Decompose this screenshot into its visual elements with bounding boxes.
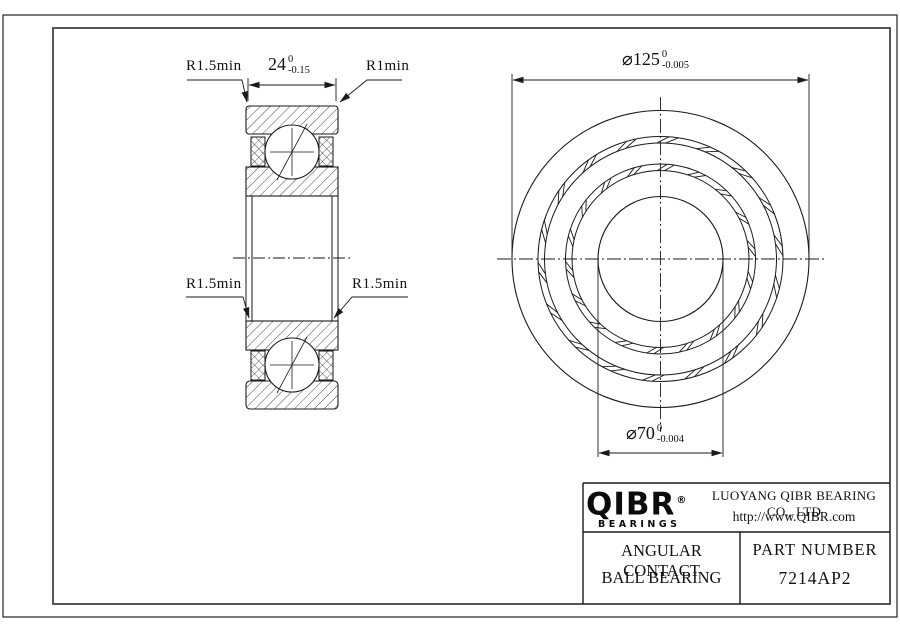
drawing-sheet: R1.5min 24 0 -0.15 R1min ⌀125 0 -0.005 R… [0,0,900,636]
outer-diameter-dimension: ⌀125 0 -0.005 [622,49,689,71]
outer-dia-value: ⌀125 [622,49,660,69]
registered-trademark-icon: ® [676,495,687,506]
product-name-line2: BALL BEARING [585,568,738,588]
company-website: http://www.QIBR.com [700,509,888,525]
width-value: 24 [268,54,286,74]
part-number-label: PART NUMBER [742,540,888,560]
outer-dia-tolerance: 0 -0.005 [662,49,689,71]
bore-dia-value: ⌀70 [626,423,655,443]
width-tolerance: 0 -0.15 [288,54,310,76]
radius-label-top-left: R1.5min [186,58,242,75]
part-number-value: 7214AP2 [742,568,888,589]
width-dimension: 24 0 -0.15 [268,54,310,76]
bore-dia-tolerance: 0 -0.004 [657,423,684,445]
radius-label-mid-left: R1.5min [186,276,242,293]
bore-diameter-dimension: ⌀70 0 -0.004 [626,423,684,445]
company-logo: QIBR® BEARINGS [586,484,706,530]
radius-label-mid-right: R1.5min [352,276,408,293]
radius-label-top-right: R1min [366,58,409,75]
logo-wordmark: QIBR® [586,484,706,521]
logo-subtext: BEARINGS [598,519,706,530]
text-overlay: R1.5min 24 0 -0.15 R1min ⌀125 0 -0.005 R… [0,0,900,636]
